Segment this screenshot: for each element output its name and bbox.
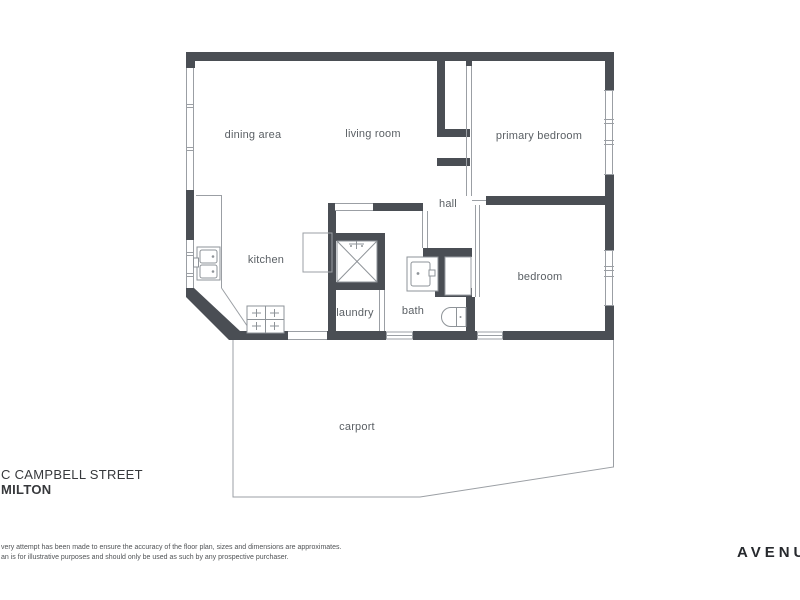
kitchen-sink-fixture xyxy=(194,247,221,280)
brand-logo: AVENU xyxy=(737,544,800,561)
address-line-1: C CAMPBELL STREET xyxy=(1,467,143,482)
room-label-living-room: living room xyxy=(345,128,400,140)
disclaimer-line-1: very attempt has been made to ensure the… xyxy=(1,543,341,553)
room-label-dining-area: dining area xyxy=(225,129,282,141)
cooktop-fixture xyxy=(247,306,284,333)
floor-plan-drawing xyxy=(0,0,800,600)
laundry-tub-fixture xyxy=(337,241,377,282)
walls xyxy=(186,52,614,340)
disclaimer-line-2: an is for illustrative purposes and shou… xyxy=(1,553,341,563)
room-label-hall: hall xyxy=(439,198,457,210)
room-label-kitchen: kitchen xyxy=(248,254,284,266)
room-label-bedroom: bedroom xyxy=(518,271,563,283)
toilet-fixture xyxy=(442,308,466,327)
room-label-primary-bedroom: primary bedroom xyxy=(496,130,582,142)
floor-plan-page: dining area living room primary bedroom … xyxy=(0,0,800,600)
room-label-laundry: laundry xyxy=(336,307,373,319)
vanity-fixture xyxy=(407,257,438,291)
refrigerator-fixture xyxy=(303,233,332,272)
address-line-2: MILTON xyxy=(1,482,143,497)
room-label-bath: bath xyxy=(402,305,424,317)
carport-outline xyxy=(233,340,614,498)
room-label-carport: carport xyxy=(339,421,375,433)
property-address: C CAMPBELL STREET MILTON xyxy=(1,467,143,497)
disclaimer: very attempt has been made to ensure the… xyxy=(1,543,341,563)
